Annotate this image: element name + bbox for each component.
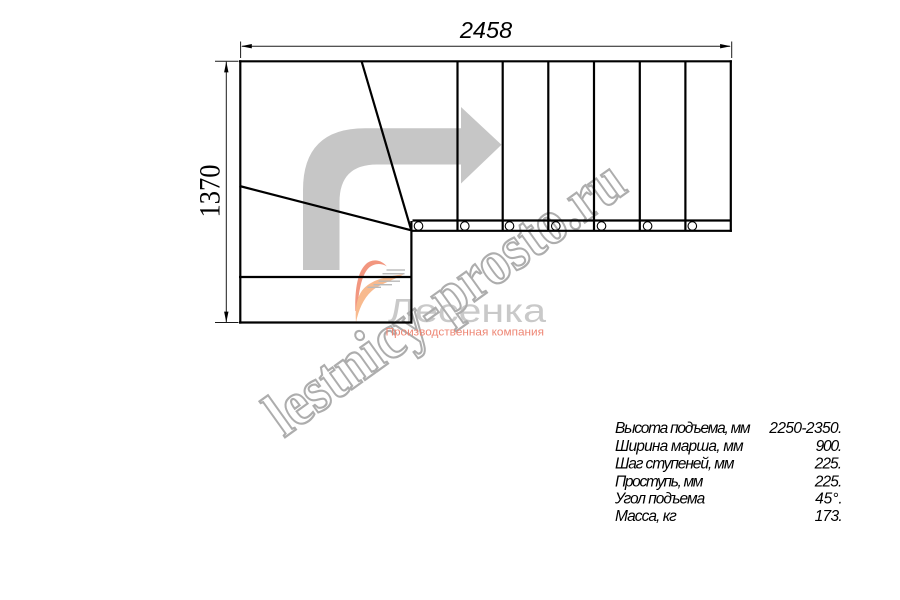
- svg-text:Ширина марша, мм: Ширина марша, мм: [615, 438, 744, 455]
- svg-text:Производственная компания: Производственная компания: [386, 327, 545, 339]
- svg-text:173.: 173.: [815, 508, 843, 525]
- svg-text:45°.: 45°.: [815, 490, 843, 507]
- svg-text:225.: 225.: [814, 473, 843, 490]
- svg-text:2250-2350.: 2250-2350.: [768, 420, 842, 437]
- svg-text:Шаг ступеней, мм: Шаг ступеней, мм: [615, 456, 735, 473]
- svg-text:Проступь, мм: Проступь, мм: [615, 473, 704, 490]
- svg-text:225.: 225.: [814, 456, 843, 473]
- svg-text:Масса, кг: Масса, кг: [615, 508, 677, 525]
- svg-text:900.: 900.: [816, 438, 843, 455]
- svg-text:2458: 2458: [459, 17, 512, 43]
- svg-text:Высота подъема, мм: Высота подъема, мм: [615, 420, 751, 437]
- svg-text:1370: 1370: [194, 165, 227, 218]
- svg-text:Угол подъема: Угол подъема: [614, 490, 706, 507]
